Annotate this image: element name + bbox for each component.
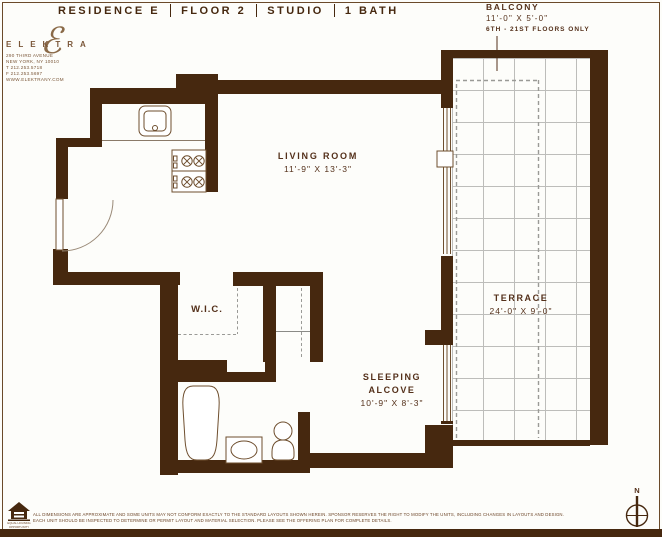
wic-label: W.I.C. bbox=[180, 304, 234, 315]
vanity-sink bbox=[226, 437, 262, 463]
balcony-dashed-outline bbox=[456, 80, 539, 438]
stove bbox=[172, 150, 206, 192]
terrace-door bbox=[437, 151, 453, 167]
disclaimer-line-1: ALL DIMENSIONS ARE APPROXIMATE AND SOME … bbox=[33, 512, 633, 518]
compass-north-label: N bbox=[629, 486, 645, 495]
equal-housing-label: EQUAL HOUSING OPPORTUNITY bbox=[1, 521, 37, 529]
disclaimer-text: ALL DIMENSIONS ARE APPROXIMATE AND SOME … bbox=[33, 512, 633, 523]
elektra-logo: ℰ ELEKTRA 290 THIRD AVENUE NEW YORK, NY … bbox=[6, 24, 116, 83]
title-bath-count: 1 BATH bbox=[345, 5, 399, 17]
entry-door bbox=[56, 199, 113, 251]
living-room-label: LIVING ROOM 11'-9" X 13'-3" bbox=[256, 150, 380, 176]
title-unit-type: STUDIO bbox=[267, 5, 324, 17]
title-floor: FLOOR 2 bbox=[181, 5, 246, 17]
terrace-label: TERRACE 24'-0" X 9'-0" bbox=[468, 292, 574, 318]
room-name: SLEEPING bbox=[340, 371, 444, 384]
terrace-tile-grid bbox=[452, 58, 590, 440]
room-name: ALCOVE bbox=[340, 384, 444, 397]
bottom-border-bar bbox=[0, 529, 662, 537]
room-dims: 11'-9" X 13'-3" bbox=[256, 163, 380, 176]
address-line: WWW.ELEKTRANY.COM bbox=[6, 77, 116, 83]
title-divider bbox=[170, 4, 171, 17]
title-divider bbox=[334, 4, 335, 17]
title-divider bbox=[256, 4, 257, 17]
balcony-dims: 11'-0" X 5'-0" bbox=[486, 13, 590, 24]
balcony-floors-note: 6TH - 21ST FLOORS ONLY bbox=[486, 24, 590, 35]
room-dims: 24'-0" X 9'-0" bbox=[468, 305, 574, 318]
room-name: W.I.C. bbox=[180, 304, 234, 315]
room-dims: 10'-9" X 8'-3" bbox=[340, 397, 444, 410]
title-residence: RESIDENCE E bbox=[58, 5, 160, 17]
closet-shelving bbox=[178, 288, 310, 358]
balcony-annotation: BALCONY 11'-0" X 5'-0" 6TH - 21ST FLOORS… bbox=[486, 2, 590, 35]
kitchen-fixtures bbox=[102, 106, 206, 192]
room-name: TERRACE bbox=[468, 292, 574, 305]
sleeping-alcove-label: SLEEPING ALCOVE 10'-9" X 8'-3" bbox=[340, 371, 444, 410]
equal-housing-icon bbox=[8, 502, 30, 521]
kitchen-sink bbox=[139, 106, 171, 136]
balcony-name: BALCONY bbox=[486, 2, 590, 13]
bathroom-fixtures bbox=[183, 386, 294, 463]
floor-plan-page: RESIDENCE E FLOOR 2 STUDIO 1 BATH ℰ ELEK… bbox=[0, 0, 662, 537]
walls bbox=[53, 50, 608, 475]
door-swing-arc bbox=[62, 200, 113, 251]
room-name: LIVING ROOM bbox=[256, 150, 380, 163]
toilet bbox=[272, 422, 294, 460]
page-title: RESIDENCE E FLOOR 2 STUDIO 1 BATH bbox=[58, 4, 399, 17]
disclaimer-line-2: EACH UNIT SHOULD BE INSPECTED TO DETERMI… bbox=[33, 518, 633, 524]
bathtub bbox=[183, 386, 219, 460]
logo-brand-name: ELEKTRA bbox=[6, 24, 116, 49]
